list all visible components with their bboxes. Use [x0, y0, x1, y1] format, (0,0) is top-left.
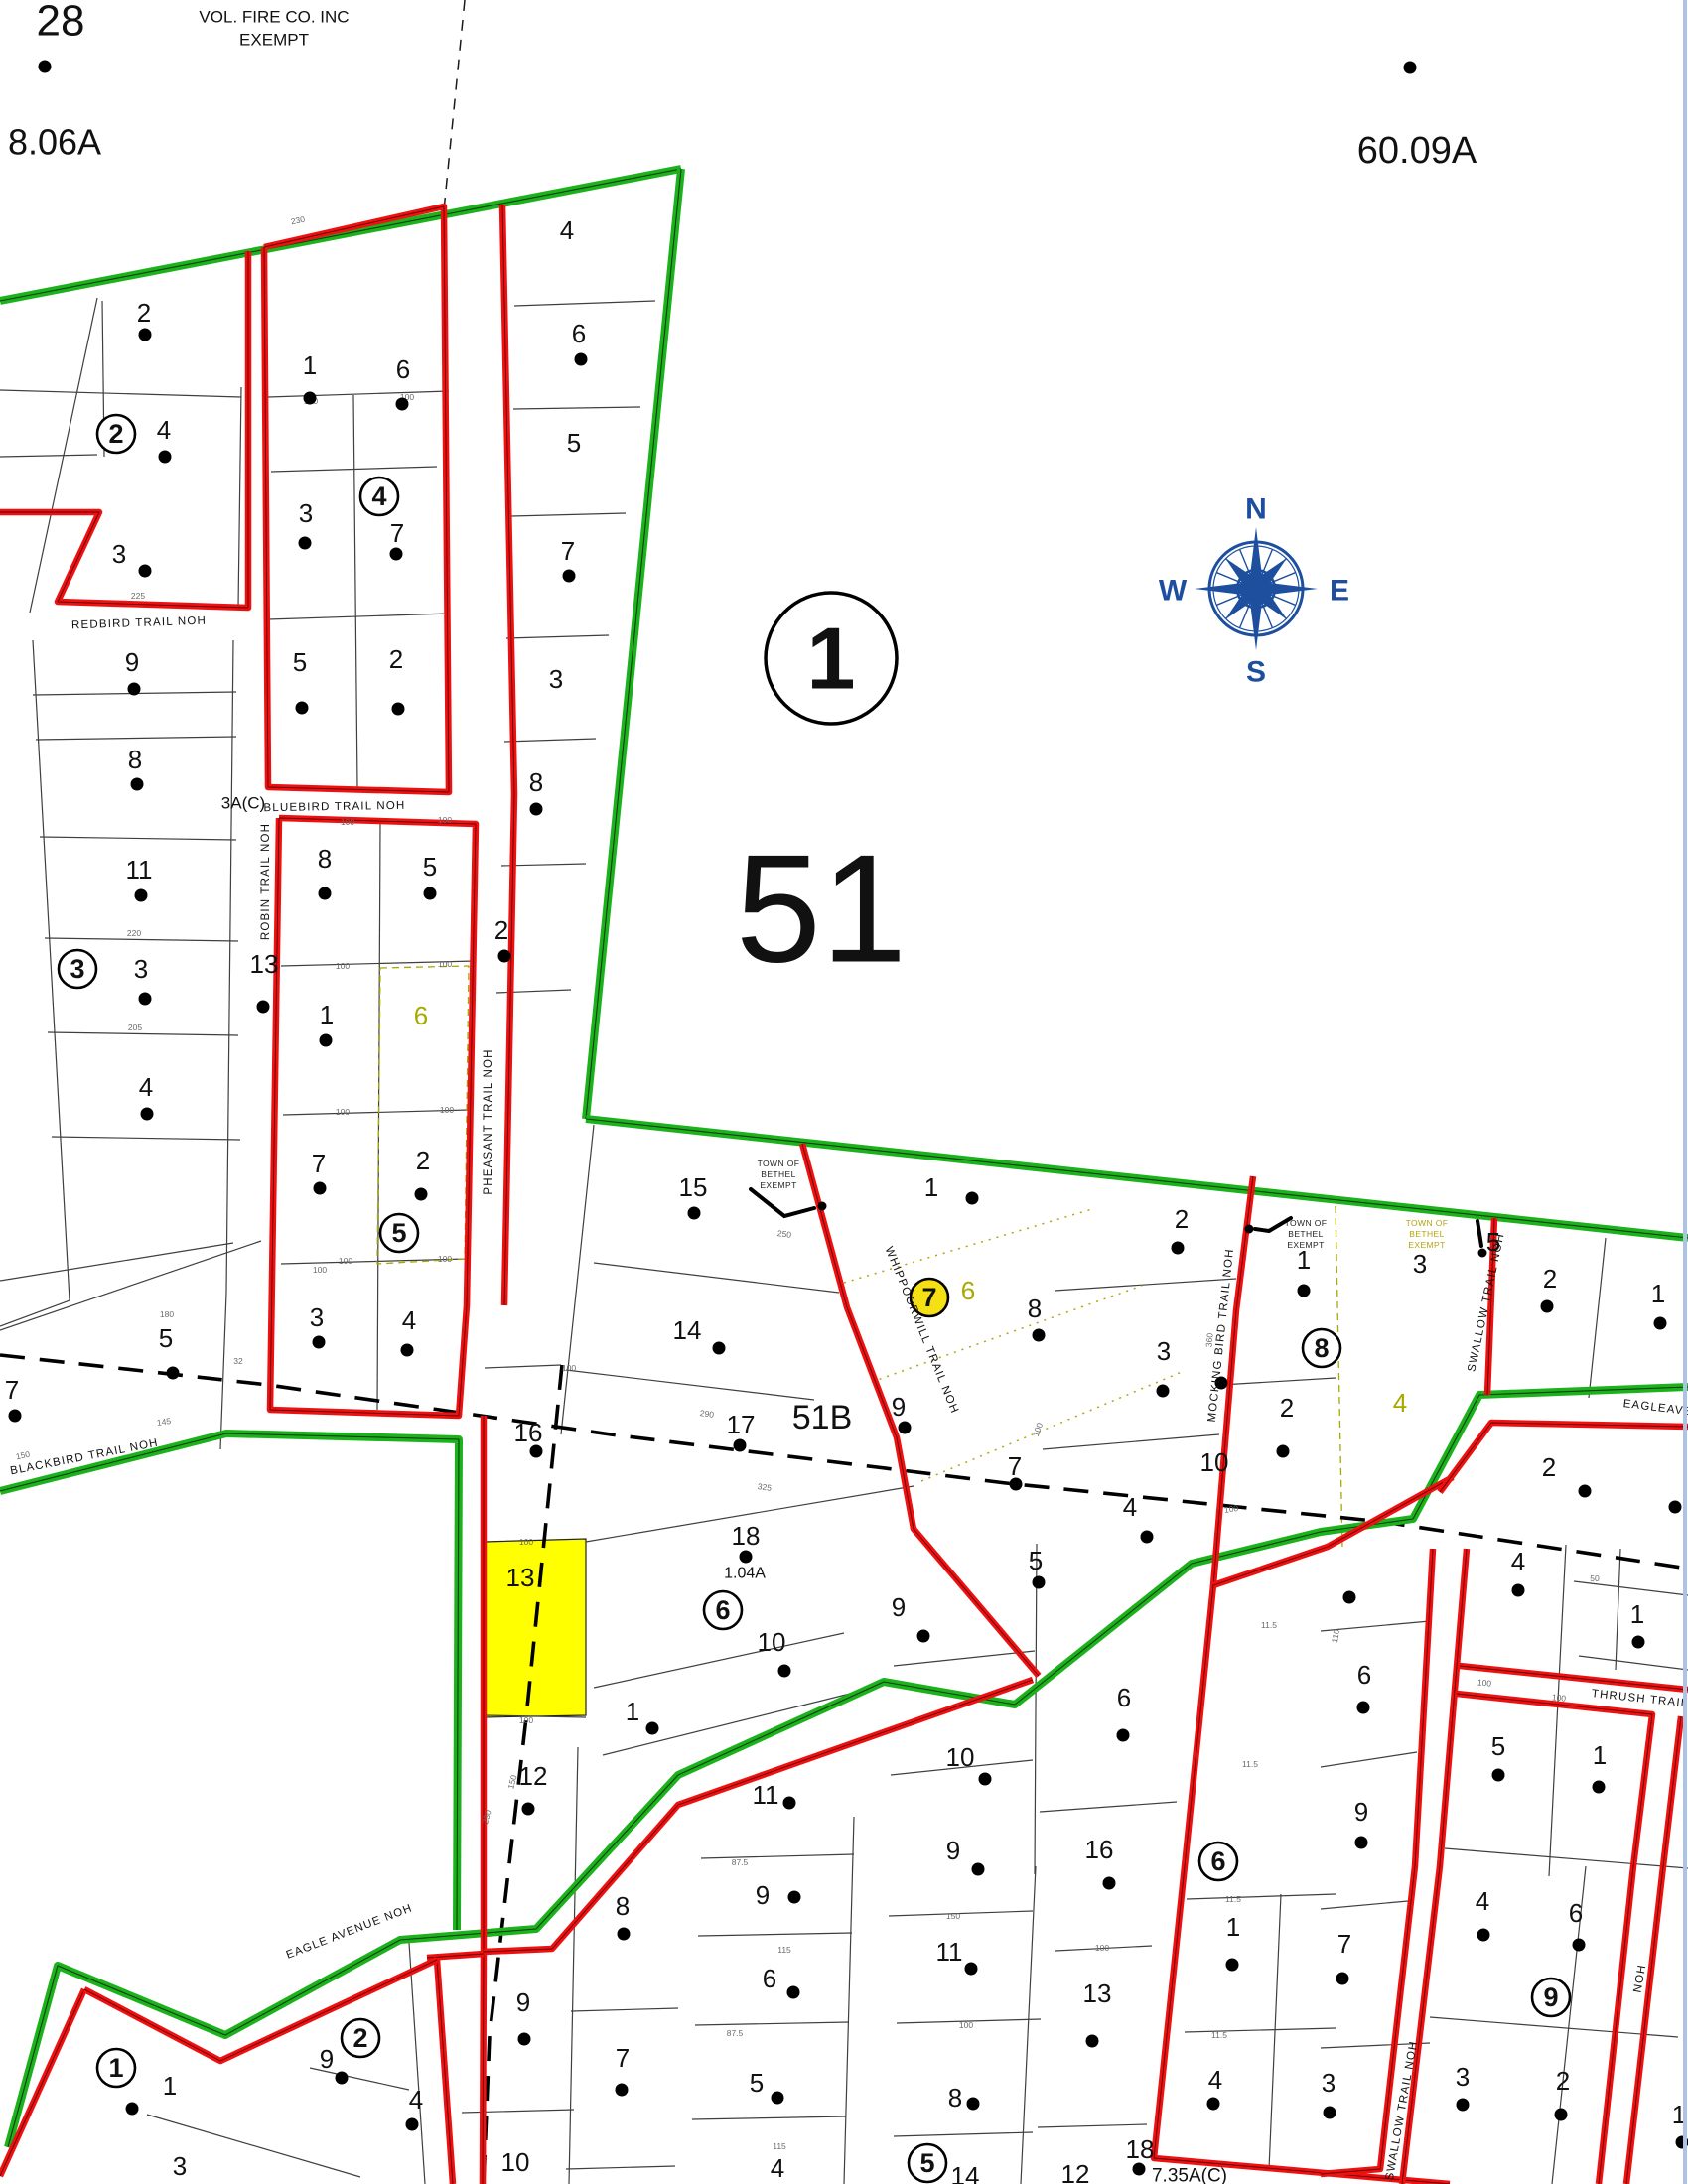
lot-dot [314, 1182, 327, 1195]
lot-dot [1141, 1531, 1154, 1544]
lot-number: 3 [173, 2151, 187, 2181]
lot-dot [530, 803, 543, 816]
lot-dot [139, 565, 152, 578]
road-line [84, 1960, 437, 2061]
parcel-line [36, 737, 236, 740]
lot-number: 4 [157, 415, 171, 445]
parcel-line [0, 390, 241, 397]
lot-number: 10 [501, 2147, 530, 2177]
section-number: 2 [352, 2023, 367, 2053]
svg-text:S: S [1246, 656, 1266, 689]
lot-number: 6 [961, 1276, 975, 1305]
pointer-arrowhead-icon [1245, 1225, 1254, 1234]
road-line [1154, 1176, 1450, 2184]
boundary-line [586, 1119, 1688, 1238]
dimension-label: 11.5 [1211, 2030, 1227, 2040]
dimension-label: 290 [699, 1408, 715, 1420]
lot-dot [1277, 1445, 1290, 1458]
parcel-line [485, 1365, 561, 1368]
lot-dot [401, 1344, 414, 1357]
lot-number: 13 [250, 949, 279, 979]
road-line [1460, 1666, 1688, 1690]
lot-dot [392, 703, 405, 716]
dimension-label: 11.5 [1225, 1894, 1241, 1904]
lot-dot [563, 570, 576, 583]
parcel-line [268, 614, 449, 619]
section-number: 8 [1314, 1333, 1329, 1363]
lot-number: 3 [299, 498, 313, 528]
parcel-line [514, 301, 655, 306]
lot-number: 9 [756, 1880, 770, 1910]
lot-number: 7 [616, 2043, 630, 2073]
parcel-line [561, 1125, 594, 1434]
lot-number: 7 [1008, 1451, 1022, 1481]
boundary-line [0, 169, 681, 301]
lot-dot [1512, 1584, 1525, 1597]
road-line [270, 818, 476, 1416]
parcel-line [1055, 1279, 1236, 1291]
lot-number: 17 [727, 1410, 756, 1439]
section-number: 6 [715, 1595, 730, 1625]
lot-number: 10 [758, 1627, 786, 1657]
lot-number: 7 [390, 518, 404, 548]
dimension-label: 100 [313, 1265, 327, 1275]
svg-text:W: W [1159, 575, 1188, 608]
parcel-line [504, 739, 596, 742]
dimension-label: 87.5 [732, 1857, 749, 1867]
lot-number: 8 [616, 1891, 630, 1921]
lot-number: 1 [1630, 1599, 1644, 1629]
exempt-note: EXEMPT [1408, 1240, 1445, 1250]
lot-number: 7 [1337, 1929, 1351, 1959]
boundary-line [586, 169, 681, 1119]
lot-number: 8 [948, 2083, 962, 2113]
lot-dot [1207, 2098, 1220, 2111]
lot-dot [1343, 1591, 1356, 1604]
lot-dot [1404, 62, 1417, 74]
parcel-line [1549, 1545, 1566, 1876]
lot-dot [1172, 1242, 1185, 1255]
lot-number: 14 [951, 2161, 980, 2184]
lot-number: 7 [5, 1375, 19, 1405]
lot-dot [1632, 1636, 1645, 1649]
parcel-line [40, 837, 236, 840]
lot-number: 3 [1322, 2068, 1336, 2098]
lot-number: 9 [1354, 1797, 1368, 1827]
area-label: 28 [37, 0, 85, 46]
lot-number: 3 [310, 1302, 324, 1332]
lot-dot [1457, 2099, 1470, 2112]
lot-dot [9, 1410, 22, 1423]
lot-dot [518, 2033, 531, 2046]
dimension-label: 145 [156, 1416, 172, 1428]
area-label: 1.04A [724, 1566, 766, 1582]
exempt-note: EXEMPT [1287, 1240, 1324, 1250]
lot-dot [1541, 1300, 1554, 1313]
parcel-line [511, 513, 626, 516]
lot-dot [1033, 1329, 1046, 1342]
lot-number: 2 [1556, 2066, 1570, 2096]
dimension-label: 110 [1330, 1628, 1341, 1643]
lot-number: 9 [892, 1392, 906, 1422]
parcel-line [220, 1293, 226, 1449]
dimension-label: 205 [128, 1023, 142, 1032]
lot-number: 6 [572, 319, 586, 348]
lot-dot [979, 1773, 992, 1786]
lot-number: 2 [1175, 1204, 1189, 1234]
lot-number: 4 [409, 2085, 423, 2115]
dimension-label: 115 [773, 2141, 786, 2151]
lot-number: 8 [318, 844, 332, 874]
lot-dot [257, 1001, 270, 1014]
lot-dot [1103, 1877, 1116, 1890]
lot-dot [1133, 2163, 1146, 2176]
parcel-line [48, 1032, 238, 1035]
parcel-line [1040, 1802, 1177, 1812]
lot-dot [396, 398, 409, 411]
exempt-note: TOWN OF [1406, 1218, 1449, 1228]
dimension-label: 100 [519, 1537, 533, 1547]
svg-text:E: E [1330, 575, 1349, 608]
lot-dot [141, 1108, 154, 1121]
lot-dot [575, 353, 588, 366]
lot-dot [965, 1963, 978, 1976]
lot-dot [336, 2072, 349, 2085]
lot-number: 6 [1117, 1683, 1131, 1712]
lot-number: 2 [1280, 1393, 1294, 1423]
dimension-label: 87.5 [727, 2028, 744, 2038]
lot-dot [304, 392, 317, 405]
lot-dot [167, 1367, 180, 1380]
parcel-line [409, 1943, 425, 2184]
parcel-line [1321, 1752, 1417, 1767]
parcel-line [377, 824, 380, 1410]
parcel-line [513, 407, 640, 409]
parcel-line [1221, 1378, 1336, 1385]
road-line [270, 818, 476, 1416]
dimension-label: 150 [15, 1449, 31, 1462]
parcel-line [0, 1243, 233, 1281]
parcel-line [1616, 1549, 1620, 1670]
lot-dot [1669, 1501, 1682, 1514]
exempt-note: BETHEL [1288, 1229, 1323, 1239]
parcel-line [268, 391, 449, 397]
lot-number: 5 [1029, 1546, 1043, 1575]
boundary-line [0, 1433, 459, 1930]
area-label: EXEMPT [239, 31, 309, 50]
road-line [1154, 1176, 1450, 2184]
lot-dot [1654, 1317, 1667, 1330]
section-number: 5 [919, 2148, 934, 2178]
parcel-line [1269, 1894, 1281, 2169]
dimension-label: 180 [160, 1309, 174, 1319]
parcel-line [52, 1137, 240, 1140]
lot-number: 9 [946, 1836, 960, 1865]
lot-number: 9 [320, 2044, 334, 2074]
lot-dot [1157, 1385, 1170, 1398]
lot-dot [616, 2084, 629, 2097]
dimension-label: 150 [505, 1774, 518, 1791]
dimension-label: 250 [776, 1228, 792, 1240]
parcel-line [1589, 1238, 1606, 1398]
parcel-line [692, 2116, 846, 2119]
lot-number: 18 [732, 1521, 761, 1551]
lot-dot [39, 61, 52, 73]
lot-number: 6 [414, 1001, 428, 1030]
lot-dot [320, 1034, 333, 1047]
dimension-label: 100 [1095, 1943, 1109, 1953]
lot-dot [1555, 2109, 1568, 2121]
parcel-line [0, 1300, 70, 1326]
section-number: 1 [807, 610, 856, 708]
lot-dot [139, 993, 152, 1006]
street-label: PHEASANT TRAIL NOH [483, 1048, 494, 1194]
dimension-label: 11.5 [1261, 1620, 1277, 1630]
street-label: ROBIN TRAIL NOH [260, 823, 272, 940]
road-line [84, 1960, 437, 2061]
lot-number: 10 [946, 1742, 975, 1772]
parcel-line [889, 1911, 1033, 1916]
parcel-line [1021, 1866, 1036, 2184]
lot-dot [406, 2118, 419, 2131]
parcel-line [1043, 1434, 1219, 1449]
lot-dot [299, 537, 312, 550]
lot-dot [967, 2098, 980, 2111]
lot-number: 10 [1200, 1447, 1229, 1477]
lot-dot [688, 1207, 701, 1220]
dimension-label: 220 [127, 928, 141, 938]
lot-number: 5 [423, 852, 437, 882]
area-label: 60.09A [1357, 130, 1477, 172]
area-label: 51 [736, 823, 907, 995]
road-line [1440, 1423, 1688, 1492]
dimension-label: 230 [290, 214, 306, 227]
parcel-line [894, 2132, 1033, 2136]
dimension-label: 100 [341, 817, 354, 827]
parcel-line [1579, 1656, 1688, 1670]
lot-dot [126, 2103, 139, 2116]
dimension-label: 100 [438, 815, 452, 825]
section-number: 6 [1210, 1846, 1225, 1876]
lot-dot [1357, 1702, 1370, 1714]
lot-dot [788, 1891, 801, 1904]
lot-dot [319, 887, 332, 900]
lot-number: 5 [293, 647, 307, 677]
lot-number: 7 [561, 536, 575, 566]
dimension-label: 100 [519, 1715, 533, 1725]
lot-number: 8 [1028, 1294, 1042, 1323]
dimension-label: 115 [777, 1945, 791, 1955]
lot-number: 2 [389, 644, 403, 674]
parcel-line [45, 938, 238, 941]
parcel-line [1187, 1894, 1336, 1899]
dimension-label: 11.5 [1242, 1759, 1258, 1769]
parcel-line [506, 635, 609, 638]
lot-dot [899, 1422, 912, 1434]
lot-number: 14 [673, 1315, 702, 1345]
street-label: EAGLEAVENUE NOH [1622, 1398, 1688, 1426]
section-number: 2 [108, 419, 123, 449]
parcel-line [238, 387, 241, 608]
lot-number: 1 [303, 350, 317, 380]
lot-number: 9 [516, 1987, 530, 2017]
parcel-line [844, 1817, 854, 2184]
lot-dot [1033, 1576, 1046, 1589]
lot-dot [1579, 1485, 1592, 1498]
lot-dot [783, 1797, 796, 1810]
dimension-label: 100 [1477, 1677, 1491, 1688]
lot-dot [522, 1803, 535, 1816]
lot-number: 13 [506, 1563, 535, 1592]
lot-number: 11 [936, 1937, 963, 1967]
lot-number: 4 [1123, 1492, 1137, 1522]
lot-number: 2 [416, 1146, 430, 1175]
svg-text:N: N [1245, 493, 1267, 526]
road-line [502, 205, 514, 1305]
exempt-note: BETHEL [1409, 1229, 1444, 1239]
pointer-arrow [1477, 1221, 1481, 1246]
lot-number: 15 [679, 1172, 708, 1202]
parcel-line [921, 1372, 1182, 1481]
dimension-label: 100 [562, 1363, 576, 1373]
lot-number: 11 [126, 855, 153, 885]
lot-number: 12 [519, 1761, 548, 1791]
dimension-label: 100 [438, 959, 452, 969]
dimension-label: 325 [757, 1481, 773, 1493]
lot-number: 2 [137, 298, 151, 328]
lot-dot [1355, 1837, 1368, 1849]
lot-dot [618, 1928, 631, 1941]
lot-dot [296, 702, 309, 715]
pointer-arrow [751, 1189, 814, 1216]
parcel-line [1321, 1901, 1408, 1909]
lot-number: 16 [1085, 1835, 1114, 1864]
section-number: 5 [391, 1218, 406, 1248]
lot-dot [646, 1722, 659, 1735]
lot-number: 4 [1393, 1388, 1407, 1418]
lot-number: 3 [1157, 1336, 1171, 1366]
lot-number: 3 [549, 664, 563, 694]
lot-number: 3 [112, 539, 126, 569]
exempt-note: TOWN OF [758, 1159, 800, 1168]
area-label: 3A(C) [221, 794, 265, 813]
lot-dot [128, 683, 141, 696]
lot-dot [1477, 1929, 1490, 1942]
lot-number: 1 [1651, 1279, 1665, 1308]
lot-number: 2 [1543, 1264, 1557, 1294]
street-label: BLUEBIRD TRAIL NOH [263, 800, 405, 814]
lot-dot [917, 1630, 930, 1643]
lot-dot [1324, 2107, 1336, 2119]
lot-dot [530, 1445, 543, 1458]
parcel-line [844, 1209, 1092, 1283]
lot-dot [787, 1986, 800, 1999]
dimension-label: 100 [959, 2020, 973, 2030]
lot-number: 4 [1511, 1547, 1525, 1576]
lot-dot [972, 1863, 985, 1876]
lot-number: 3 [1413, 1249, 1427, 1279]
lot-number: 4 [1476, 1886, 1489, 1916]
dimension-label: 50 [1590, 1573, 1600, 1583]
lot-number: 4 [139, 1072, 153, 1102]
parcel-line [226, 640, 233, 1293]
section-number: 3 [70, 954, 84, 984]
dimension-label: 32 [233, 1356, 243, 1366]
parcel-line [701, 1854, 854, 1858]
lot-number: 4 [771, 2153, 784, 2183]
parcel-line [462, 2110, 574, 2113]
lot-dot [734, 1439, 747, 1452]
parcel-map-page: 2302252202051001801451503210010010010010… [0, 0, 1688, 2184]
parcel-line [1035, 1544, 1037, 1874]
parcel-line [695, 2022, 849, 2025]
parcel-line [1185, 2028, 1336, 2032]
lot-number: 7 [312, 1149, 326, 1178]
dimension-label: 100 [339, 1256, 352, 1266]
lot-dot [1593, 1781, 1606, 1794]
lot-number: 2 [494, 915, 508, 945]
lot-dot [424, 887, 437, 900]
road-line [1440, 1423, 1688, 1492]
lot-dot [1117, 1729, 1130, 1742]
lot-number: 2 [1542, 1452, 1556, 1482]
parcel-line [571, 2008, 678, 2011]
parcel-line [0, 1241, 261, 1330]
lot-number: 1 [1593, 1740, 1607, 1770]
exempt-note: BETHEL [761, 1169, 795, 1179]
road-line [437, 1960, 453, 2184]
lot-number: 4 [560, 215, 574, 245]
dimension-label: 100 [438, 1254, 452, 1264]
dashed-boundary-line [0, 1355, 1688, 1569]
parcel-line [566, 2166, 675, 2169]
lot-number: 6 [1569, 1898, 1583, 1928]
lot-dot [1010, 1478, 1023, 1491]
lot-number: 3 [134, 954, 148, 984]
area-label: 8.06A [8, 122, 101, 163]
dimension-label: 100 [1031, 1421, 1045, 1437]
lot-number: 1 [924, 1172, 938, 1202]
area-label: 51B [792, 1399, 853, 1436]
section-number: 4 [371, 481, 386, 511]
lot-number: 6 [1357, 1660, 1371, 1690]
lot-number: 3 [1456, 2062, 1470, 2092]
lot-dot [778, 1665, 791, 1678]
street-label: EAGLE AVENUE NOH [285, 1902, 415, 1962]
lot-number: 1 [320, 1000, 334, 1029]
street-label: WHIPPOORWILL TRAIL NOH [883, 1245, 961, 1416]
area-label: 7.35A(C) [1152, 2166, 1227, 2184]
lot-number: 11 [753, 1780, 779, 1810]
lot-number: 1 [626, 1697, 639, 1726]
street-label: REDBIRD TRAIL NOH [71, 615, 207, 632]
lot-number: 5 [567, 428, 581, 458]
lot-number: 18 [1126, 2134, 1155, 2164]
lot-dot [1086, 2035, 1099, 2048]
lot-dot [390, 548, 403, 561]
section-number: 9 [1543, 1982, 1558, 2012]
lot-number: 8 [128, 745, 142, 774]
lot-dot [313, 1336, 326, 1349]
lot-number: 6 [763, 1964, 776, 1993]
dimension-label: 100 [336, 961, 350, 971]
lot-dot [159, 451, 172, 464]
dimension-label: 100 [1551, 1692, 1566, 1703]
parcel-line [698, 1933, 852, 1936]
lot-dot [966, 1192, 979, 1205]
lot-dot [1573, 1939, 1586, 1952]
lot-dot [415, 1188, 428, 1201]
